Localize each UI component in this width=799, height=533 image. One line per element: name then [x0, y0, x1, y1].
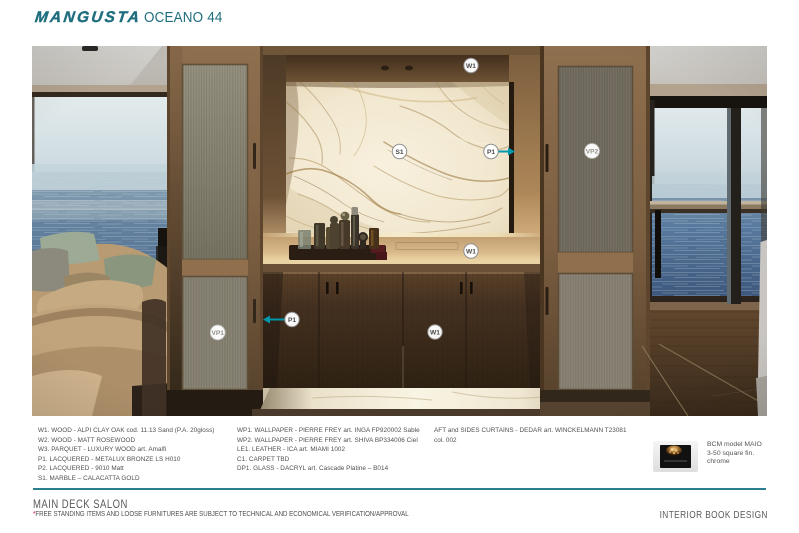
svg-text:VP2: VP2 — [586, 149, 599, 156]
svg-text:S1: S1 — [395, 149, 403, 156]
svg-text:W1: W1 — [466, 63, 476, 70]
svg-text:P1: P1 — [487, 149, 495, 156]
svg-text:VP1: VP1 — [211, 330, 224, 337]
svg-text:P1: P1 — [288, 317, 296, 324]
svg-text:W1: W1 — [430, 330, 440, 337]
svg-text:W1: W1 — [466, 249, 476, 256]
